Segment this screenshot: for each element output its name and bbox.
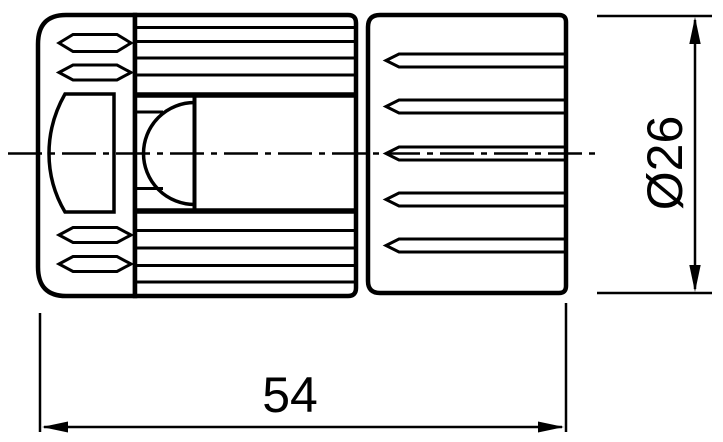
grip-slot — [59, 257, 131, 272]
arrowhead-down-icon — [689, 265, 700, 292]
grip-slot — [59, 65, 131, 80]
grip-slot — [59, 228, 131, 243]
length-dimension-label: 54 — [262, 367, 318, 423]
ribbed-sleeve — [135, 15, 356, 296]
connector-housing — [38, 15, 135, 296]
arrowhead-up-icon — [689, 17, 700, 44]
connector-technical-drawing: 54 Ø26 — [0, 0, 723, 442]
arrowhead-left-icon — [42, 422, 68, 433]
dimension-length: 54 — [40, 303, 566, 433]
arrowhead-right-icon — [538, 422, 564, 433]
technical-drawing-canvas: 54 Ø26 — [0, 0, 723, 442]
dimension-diameter: Ø26 — [597, 16, 712, 293]
diameter-dimension-label: Ø26 — [637, 116, 693, 211]
grip-slot — [59, 35, 131, 52]
